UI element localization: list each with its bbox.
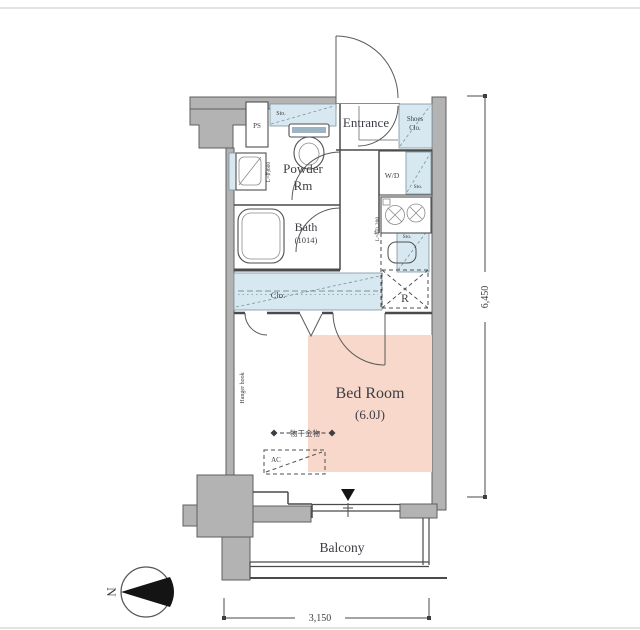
top-left-wall-block	[190, 109, 246, 148]
laundry-pole-label: 物干金物	[290, 428, 320, 438]
balcony-right-rail	[423, 518, 429, 565]
compass: N	[104, 567, 174, 617]
balcony-window-sill	[312, 505, 400, 512]
hanger-hook-label: Hanger hook	[240, 372, 246, 403]
column-left-nub	[183, 505, 197, 526]
window-center-marker	[341, 489, 355, 501]
corner-column	[197, 475, 253, 537]
toilet-tank-lid	[292, 127, 326, 133]
closet-label: Clo.	[271, 290, 285, 300]
powder-room-label-line2: Rm	[294, 178, 313, 193]
window-sill-block	[400, 504, 437, 518]
balcony-partition-wall	[253, 506, 311, 522]
entrance-door-swing	[336, 36, 398, 98]
refrigerator-label: R	[401, 293, 409, 305]
closet-door-swing	[245, 313, 267, 335]
laundry-pole-diamond-left	[271, 430, 278, 437]
folding-door-mark	[300, 314, 322, 336]
powder-room-label-line1: Powder	[283, 161, 323, 176]
dim-end-top	[483, 94, 487, 98]
shoes-closet-label-line1: Shoes	[407, 116, 424, 123]
storage-above-toilet-label: Sto.	[276, 111, 286, 117]
dim-end-left	[222, 616, 226, 620]
storage-above-washer-label: Sto.	[414, 184, 423, 190]
bedroom-floor-highlight	[308, 335, 432, 472]
vanity-length-label: L=約600	[264, 162, 272, 182]
bedroom-label: Bed Room	[336, 385, 405, 402]
left-wall	[226, 148, 234, 478]
vertical-dimension-label: 6,450	[480, 286, 491, 309]
pipe-space-label: PS	[253, 122, 261, 130]
floor-plan-drawing: Entrance Shoes Clo. PS Sto. Powder Rm W/…	[0, 0, 640, 630]
bath-size-label: (1014)	[295, 235, 318, 245]
horizontal-dimension-label: 3,150	[309, 613, 332, 624]
right-wall	[432, 97, 446, 510]
washer-dryer-label: W/D	[385, 171, 400, 180]
kitchen-length-label: L=約1,200	[373, 217, 381, 242]
balcony-label: Balcony	[320, 540, 365, 555]
shoes-closet-label-line2: Clo.	[409, 125, 421, 132]
ac-label: AC	[271, 456, 281, 464]
column-stem	[222, 537, 250, 580]
bathtub	[238, 209, 284, 263]
entrance-label: Entrance	[343, 115, 389, 130]
storage-above-sink-label: Sto.	[403, 234, 412, 240]
dim-end-bottom	[483, 495, 487, 499]
bedroom-size-label: (6.0J)	[355, 407, 385, 422]
stove	[381, 197, 431, 233]
dim-end-right	[427, 616, 431, 620]
doors	[245, 36, 398, 365]
bath-label: Bath	[295, 220, 318, 234]
north-label: N	[104, 587, 119, 597]
balcony-bottom-rail	[250, 562, 429, 578]
labels: Entrance Shoes Clo. PS Sto. Powder Rm W/…	[240, 111, 423, 555]
floor-plan-page: Entrance Shoes Clo. PS Sto. Powder Rm W/…	[0, 0, 640, 630]
